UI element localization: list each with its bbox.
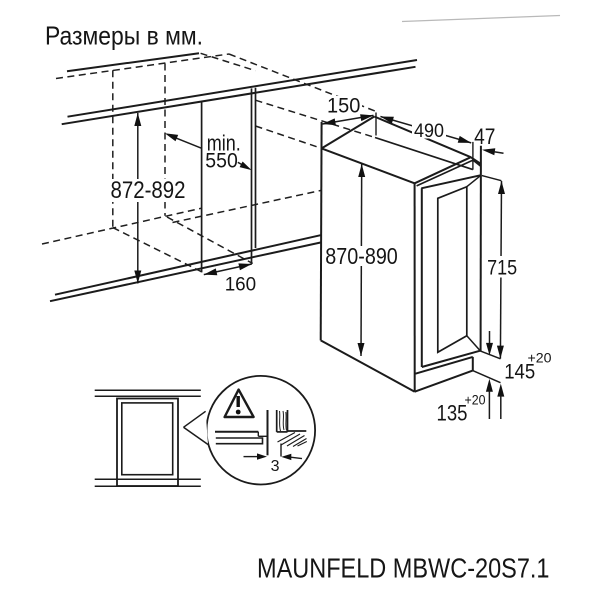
svg-text:135: 135 (437, 401, 468, 426)
svg-text:150: 150 (327, 94, 360, 117)
svg-text:Размеры в мм.: Размеры в мм. (45, 20, 203, 50)
svg-text:870-890: 870-890 (325, 243, 398, 269)
svg-text:550: 550 (205, 149, 238, 172)
svg-text:3: 3 (271, 458, 280, 475)
svg-text:490: 490 (414, 120, 444, 142)
svg-text:160: 160 (225, 273, 257, 295)
svg-text:+20: +20 (528, 350, 552, 365)
svg-text:872-892: 872-892 (111, 177, 186, 204)
svg-text:MAUNFELD MBWC-20S7.1: MAUNFELD MBWC-20S7.1 (257, 553, 550, 584)
svg-text:715: 715 (487, 256, 517, 280)
svg-text:47: 47 (474, 124, 495, 149)
svg-text:+20: +20 (465, 393, 486, 408)
